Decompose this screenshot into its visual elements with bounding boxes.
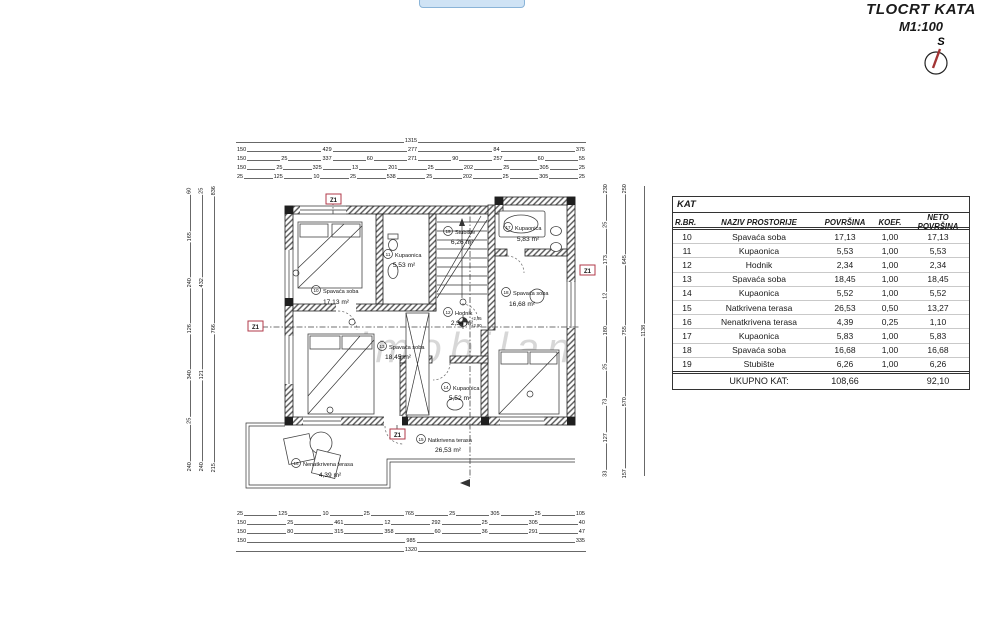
svg-text:12: 12	[445, 310, 451, 315]
svg-text:11: 11	[386, 252, 391, 257]
cropped-toolbar[interactable]	[419, 0, 525, 8]
floor-plan-drawing: imobilan	[175, 125, 675, 570]
col-header-povrsina: POVRŠINA	[817, 218, 873, 227]
svg-text:Kupaonica: Kupaonica	[515, 226, 542, 232]
table-cell: 18,45	[907, 274, 969, 284]
table-cell: 26,53	[817, 303, 873, 313]
room-label-15: 15Natkrivena terasa26,53 m²	[417, 435, 473, 455]
table-cell: 13	[673, 274, 701, 284]
table-cell: Kupaonica	[701, 246, 817, 256]
svg-text:Z1: Z1	[394, 433, 402, 439]
bed	[499, 350, 559, 414]
table-cell: 5,52	[907, 288, 969, 298]
terrace-door-opening	[384, 416, 402, 426]
table-cell: 6,26	[907, 359, 969, 369]
bathtub	[499, 211, 545, 237]
table-row: 16Nenatkrivena terasa4,390,251,10	[673, 315, 969, 329]
table-row: 13Spavaća soba18,451,0018,45	[673, 273, 969, 287]
svg-text:Z1: Z1	[252, 325, 260, 331]
table-row: 19Stubište6,261,006,26	[673, 358, 969, 371]
window	[500, 416, 544, 426]
table-cell: Spavaća soba	[701, 345, 817, 355]
table-cell: 19	[673, 359, 701, 369]
svg-text:Spavaća soba: Spavaća soba	[513, 291, 549, 297]
table-cell: 14	[673, 288, 701, 298]
toilet	[551, 227, 562, 236]
compass-icon: S	[917, 34, 957, 80]
section-marker-z1-bottom: Z1	[390, 429, 405, 439]
compass-north-label: S	[937, 36, 945, 48]
bidet	[551, 243, 562, 252]
table-cell: 13,27	[907, 303, 969, 313]
room-label-18: 18Spavaća soba16,68 m²	[502, 288, 550, 309]
table-cell: 16,68	[907, 345, 969, 355]
table-cell: 6,26	[817, 359, 873, 369]
svg-text:26,53 m²: 26,53 m²	[435, 447, 462, 454]
table-cell: 18	[673, 345, 701, 355]
svg-text:5,52 m²: 5,52 m²	[449, 395, 472, 402]
table-row: 10Spavaća soba17,131,0017,13	[673, 230, 969, 244]
table-cell: 1,00	[873, 288, 907, 298]
svg-text:16,68 m²: 16,68 m²	[509, 301, 536, 308]
table-cell: Natkrivena terasa	[701, 303, 817, 313]
svg-text:19: 19	[445, 229, 451, 234]
svg-text:15: 15	[418, 437, 424, 442]
svg-text:18,45 m²: 18,45 m²	[385, 354, 412, 361]
table-cell: 5,83	[817, 331, 873, 341]
svg-text:Z1: Z1	[330, 198, 338, 204]
svg-text:Stubište: Stubište	[455, 230, 475, 236]
table-row: 12Hodnik2,341,002,34	[673, 258, 969, 272]
table-cell: 2,34	[817, 260, 873, 270]
room-label-14: 14Kupaonica5,52 m²	[442, 383, 481, 403]
svg-text:Natkrivena terasa: Natkrivena terasa	[428, 438, 473, 444]
col-header-neto: NETO POVRŠINA	[907, 213, 969, 231]
table-cell: 1,00	[873, 260, 907, 270]
footer-povrsina-total: 108,66	[817, 376, 873, 386]
area-table: KAT R.BR. NAZIV PROSTORIJE POVRŠINA KOEF…	[672, 196, 970, 390]
floor-plan-sheet: TLOCRT KATA M1:100 S KAT R.BR. NAZIV PRO…	[0, 0, 986, 640]
section-marker-z1-right: Z1	[580, 265, 595, 275]
svg-text:2,34 m²: 2,34 m²	[451, 320, 474, 327]
table-cell: 1,00	[873, 359, 907, 369]
table-cell: 10	[673, 232, 701, 242]
svg-text:Hodnik: Hodnik	[455, 311, 473, 317]
table-cell: 1,00	[873, 232, 907, 242]
svg-text:Kupaonica: Kupaonica	[395, 253, 422, 259]
table-cell: Kupaonica	[701, 288, 817, 298]
table-cell: Kupaonica	[701, 331, 817, 341]
wardrobe	[406, 313, 429, 415]
svg-text:17: 17	[505, 225, 511, 230]
table-cell: 5,83	[907, 331, 969, 341]
drawing-scale: M1:100	[858, 19, 984, 34]
svg-text:Nenatkrivena terasa: Nenatkrivena terasa	[303, 462, 354, 468]
table-footer-row: UKUPNO KAT: 108,66 92,10	[673, 371, 969, 389]
svg-text:5,53 m²: 5,53 m²	[393, 262, 416, 269]
table-cell: 1,00	[873, 331, 907, 341]
table-cell: 5,52	[817, 288, 873, 298]
room-label-19: 19Stubište6,26 m²	[444, 227, 476, 247]
table-cell: Spavaća soba	[701, 232, 817, 242]
table-header-row: R.BR. NAZIV PROSTORIJE POVRŠINA KOEF. NE…	[673, 213, 969, 230]
table-cell: 0,50	[873, 303, 907, 313]
window	[303, 416, 341, 426]
toilet	[388, 234, 398, 251]
table-cell: 1,00	[873, 246, 907, 256]
table-row: 14Kupaonica5,521,005,52	[673, 287, 969, 301]
table-cell: 4,39	[817, 317, 873, 327]
table-cell: 17	[673, 331, 701, 341]
table-cell: 1,10	[907, 317, 969, 327]
svg-text:Kupaonica: Kupaonica	[453, 386, 480, 392]
table-title: KAT	[673, 197, 969, 213]
svg-text:Spavaća soba: Spavaća soba	[323, 289, 359, 295]
window	[300, 205, 346, 215]
svg-text:Z1: Z1	[584, 269, 592, 275]
table-cell: 15	[673, 303, 701, 313]
table-cell: 18,45	[817, 274, 873, 284]
room-label-10: 10Spavaća soba17,13 m²	[312, 286, 360, 307]
table-body: 10Spavaća soba17,131,0017,1311Kupaonica5…	[673, 230, 969, 371]
drawing-title: TLOCRT KATA	[858, 1, 984, 18]
table-cell: Hodnik	[701, 260, 817, 270]
table-cell: Nenatkrivena terasa	[701, 317, 817, 327]
table-cell: Spavaća soba	[701, 274, 817, 284]
svg-text:16: 16	[293, 461, 299, 466]
title-block: TLOCRT KATA M1:100	[858, 1, 984, 34]
table-cell: Stubište	[701, 359, 817, 369]
col-header-rbr: R.BR.	[673, 218, 701, 227]
table-cell: 17,13	[817, 232, 873, 242]
window	[284, 336, 294, 384]
svg-text:4,39 m²: 4,39 m²	[319, 472, 342, 479]
table-cell: 16	[673, 317, 701, 327]
table-cell: 0,25	[873, 317, 907, 327]
svg-text:6,26 m²: 6,26 m²	[451, 239, 474, 246]
table-cell: 12	[673, 260, 701, 270]
col-header-koef: KOEF.	[873, 218, 907, 227]
section-marker-z1-left: Z1	[248, 321, 263, 331]
table-row: 18Spavaća soba16,681,0016,68	[673, 344, 969, 358]
svg-text:5,83 m²: 5,83 m²	[517, 236, 540, 243]
svg-text:18: 18	[503, 290, 509, 295]
svg-text:Spavaća soba: Spavaća soba	[389, 345, 425, 351]
svg-text:13: 13	[379, 344, 385, 349]
window	[284, 250, 294, 298]
table-cell: 1,00	[873, 274, 907, 284]
bed	[308, 334, 374, 414]
table-cell: 5,53	[817, 246, 873, 256]
table-row: 17Kupaonica5,831,005,83	[673, 329, 969, 343]
col-header-naziv: NAZIV PROSTORIJE	[701, 218, 817, 227]
window	[566, 282, 576, 328]
bed	[298, 222, 362, 288]
table-cell: 11	[673, 246, 701, 256]
section-marker-z1-top: Z1	[326, 194, 341, 204]
table-cell: 17,13	[907, 232, 969, 242]
table-cell: 5,53	[907, 246, 969, 256]
svg-text:17,13 m²: 17,13 m²	[323, 299, 350, 306]
table-row: 11Kupaonica5,531,005,53	[673, 244, 969, 258]
section-arrow	[460, 479, 470, 487]
svg-text:14: 14	[443, 385, 449, 390]
footer-label: UKUPNO KAT:	[701, 376, 817, 386]
table-row: 15Natkrivena terasa26,530,5013,27	[673, 301, 969, 315]
table-cell: 16,68	[817, 345, 873, 355]
footer-neto-total: 92,10	[907, 376, 969, 386]
table-cell: 2,34	[907, 260, 969, 270]
svg-text:10: 10	[313, 288, 319, 293]
table-cell: 1,00	[873, 345, 907, 355]
